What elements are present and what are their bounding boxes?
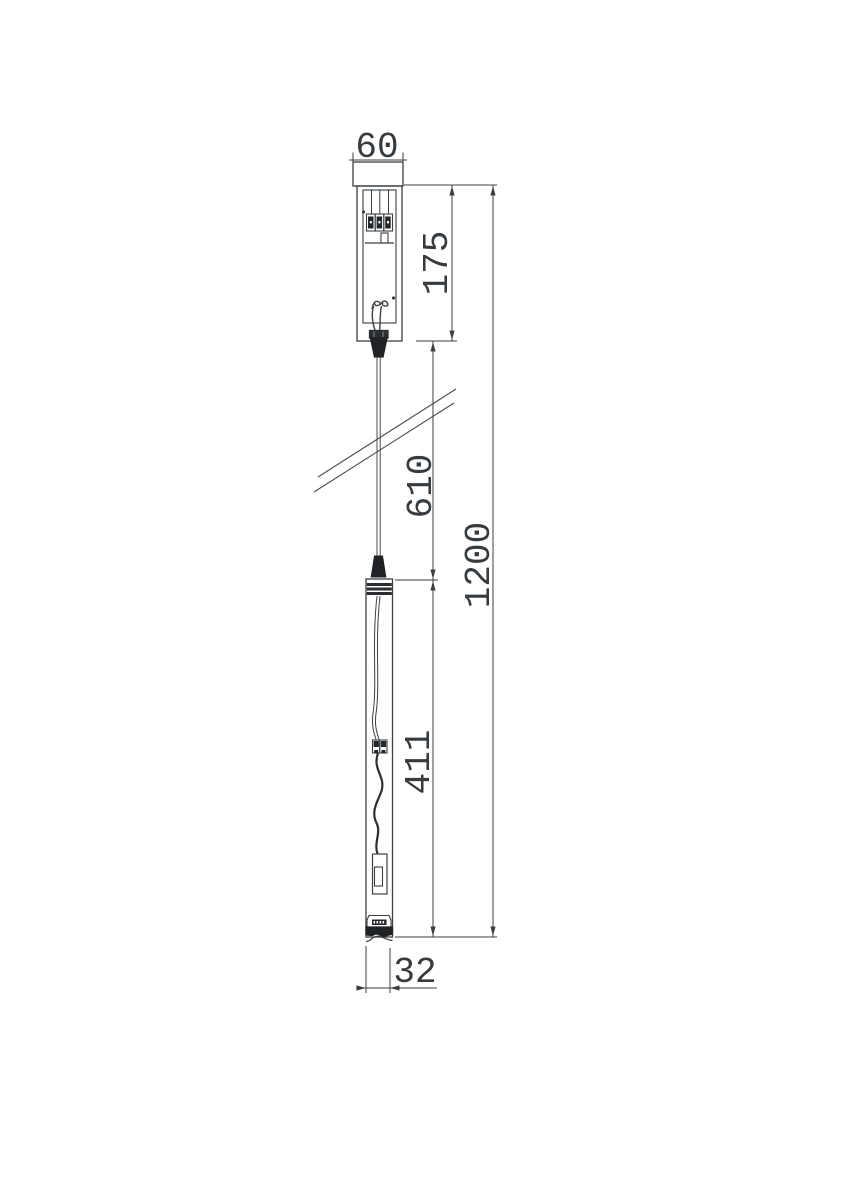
screw-dot: [392, 296, 395, 299]
arrowhead-up: [490, 186, 495, 196]
dim-411-label: 411: [399, 730, 440, 795]
drawing-sheet: 60 175 610 411 1200 32: [0, 0, 849, 1200]
dim-60-label: 60: [355, 127, 398, 168]
canopy-wires: [372, 301, 388, 333]
bracket-tab: [381, 233, 388, 243]
arrowhead-down: [449, 331, 454, 341]
arrowhead-down: [490, 927, 495, 937]
bottom-connector: [367, 916, 391, 928]
tube-wires: [372, 596, 380, 740]
technical-drawing: 60 175 610 411 1200 32: [0, 0, 849, 1200]
lamp-top-cone: [371, 556, 386, 577]
arrowhead-down: [430, 570, 435, 580]
dim-175-label: 175: [417, 231, 458, 296]
driver-box: [373, 854, 388, 894]
arrowhead-down: [430, 927, 435, 937]
arrowhead-up: [430, 342, 435, 352]
terminal-block: [367, 214, 393, 231]
dim-610-label: 610: [401, 454, 442, 519]
screw-dot: [362, 210, 365, 213]
arrowhead-up: [449, 186, 454, 196]
dim-32-label: 32: [393, 952, 436, 993]
end-cap-band: [366, 927, 393, 936]
lamp-tube: [366, 579, 393, 942]
cord-grip: [370, 331, 389, 358]
arrowhead-right: [357, 985, 367, 990]
inline-connector: [373, 740, 388, 753]
drop-wire: [374, 753, 382, 854]
dim-1200-label: 1200: [459, 522, 500, 608]
canopy: [353, 162, 403, 357]
grip-ridges: [367, 583, 392, 595]
arrowhead-up: [430, 581, 435, 591]
tube-outline: [366, 579, 393, 937]
